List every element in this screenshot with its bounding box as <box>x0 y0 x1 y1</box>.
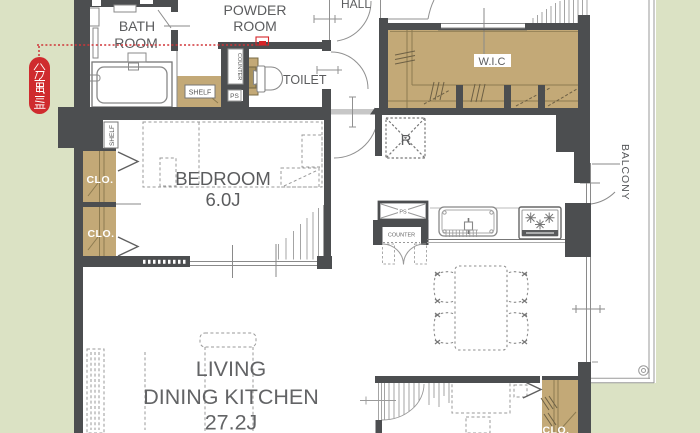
svg-text:6.0J: 6.0J <box>206 189 241 210</box>
svg-text:CLO.: CLO. <box>542 425 569 433</box>
svg-text:BEDROOM: BEDROOM <box>175 168 271 189</box>
svg-text:POWDER: POWDER <box>224 2 287 18</box>
svg-text:COUNTER: COUNTER <box>388 233 415 239</box>
svg-text:BALCONY: BALCONY <box>619 144 631 200</box>
svg-text:HALL: HALL <box>341 0 371 11</box>
svg-text:ROOM: ROOM <box>233 18 277 34</box>
svg-text:SHELF: SHELF <box>189 90 212 97</box>
svg-text:R: R <box>401 132 412 149</box>
svg-text:ROOM: ROOM <box>114 35 158 51</box>
svg-text:BATH: BATH <box>119 18 155 34</box>
svg-text:27.2J: 27.2J <box>205 411 258 433</box>
svg-text:PS: PS <box>230 93 239 100</box>
svg-text:PS: PS <box>399 210 407 216</box>
svg-text:CLO.: CLO. <box>87 228 114 240</box>
svg-text:COUNTER: COUNTER <box>236 53 242 80</box>
svg-text:SHELF: SHELF <box>109 125 116 146</box>
svg-text:W.I.C: W.I.C <box>479 56 506 68</box>
svg-text:DINING KITCHEN: DINING KITCHEN <box>143 385 319 409</box>
svg-text:TOILET: TOILET <box>283 73 327 87</box>
svg-text:CLO.: CLO. <box>86 174 113 186</box>
svg-text:LIVING: LIVING <box>196 357 267 381</box>
